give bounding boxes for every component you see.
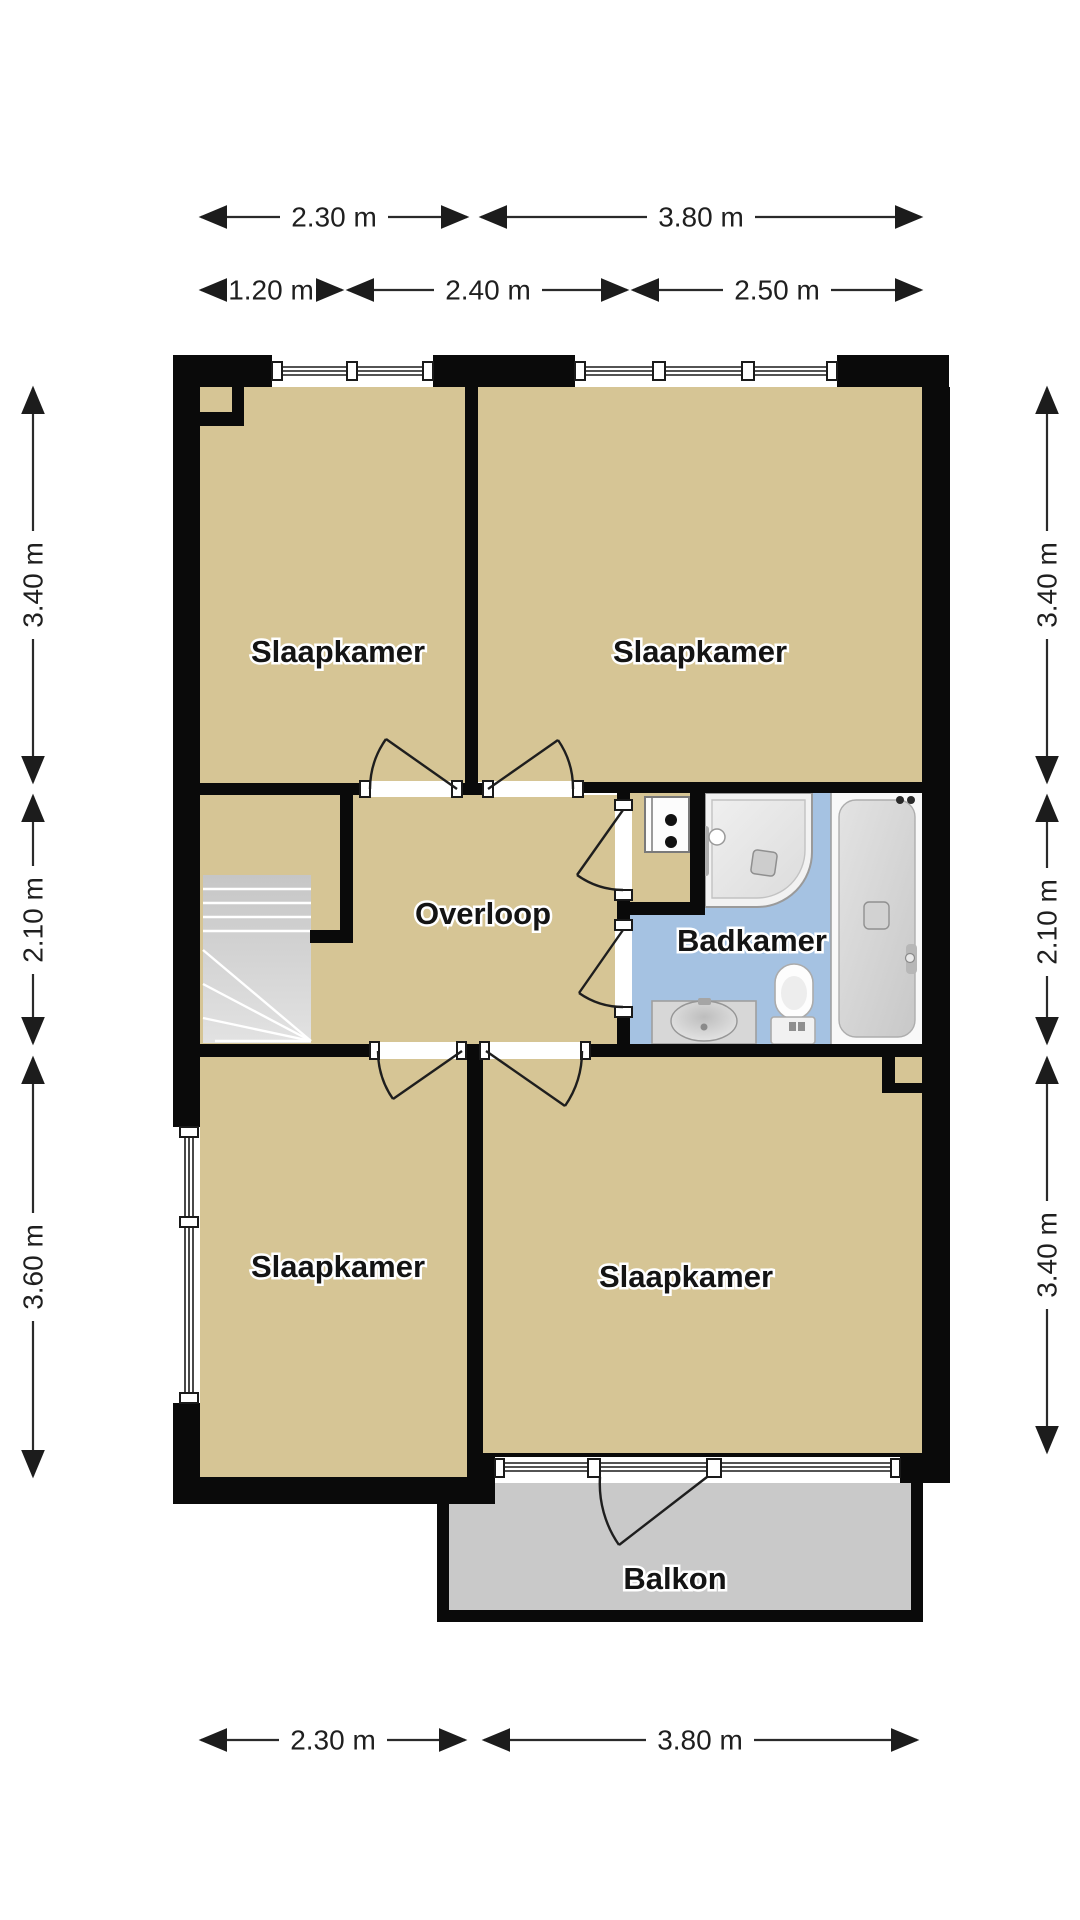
window-frame xyxy=(575,362,585,380)
shower xyxy=(701,793,812,907)
stairs xyxy=(203,875,311,1043)
window-balcony xyxy=(495,1457,900,1479)
dim-top-secondary-3: 2.50 m xyxy=(633,275,921,306)
wall-stairwell xyxy=(340,795,353,943)
window-frame xyxy=(588,1459,600,1477)
bathtub-faucet xyxy=(896,796,904,804)
dim-label: 2.30 m xyxy=(290,1725,376,1756)
stairs-body xyxy=(203,875,311,1043)
room-label-bedroom-bottom-left: Slaapkamer xyxy=(251,1249,425,1284)
door-frame xyxy=(573,781,583,797)
sink-basin xyxy=(671,1001,737,1041)
dim-top-secondary-2: 2.40 m xyxy=(348,275,627,306)
washing-machine-knob xyxy=(665,836,677,848)
window-frame xyxy=(180,1393,198,1403)
wall-between-top-bedrooms xyxy=(465,387,478,783)
window-frame xyxy=(707,1459,721,1477)
sink-faucet xyxy=(698,998,711,1005)
shower-head-icon xyxy=(709,829,725,845)
window-left xyxy=(180,1127,198,1403)
wall-bottom-left-south xyxy=(173,1477,495,1504)
toilet-bowl-inner xyxy=(781,976,807,1010)
dim-label: 2.30 m xyxy=(291,202,377,233)
wall-top-right-corner xyxy=(837,355,949,387)
door-frame xyxy=(615,890,632,900)
dim-right-1: 3.40 m xyxy=(1032,388,1063,782)
shower-tray-inner xyxy=(712,800,805,898)
dim-label: 3.40 m xyxy=(1032,542,1063,628)
wall-balcony-junction xyxy=(483,1453,495,1477)
window-opening xyxy=(495,1457,900,1479)
toilet-flush-button xyxy=(789,1022,796,1031)
window-frame xyxy=(827,362,837,380)
dim-top-primary-2: 3.80 m xyxy=(481,202,921,233)
toilet-flush-button xyxy=(798,1022,805,1031)
dim-left-2: 2.10 m xyxy=(18,796,49,1043)
window-frame xyxy=(272,362,282,380)
bathtub-hose xyxy=(906,954,915,963)
dim-bottom-1: 2.30 m xyxy=(201,1725,465,1756)
window-frame xyxy=(347,362,357,380)
dim-label: 3.40 m xyxy=(18,542,49,628)
wall-between-bottom-bedrooms xyxy=(467,1057,483,1477)
room-floor-bedroom-bottom-right xyxy=(483,1057,922,1453)
dim-top-secondary-1: 1.20 m xyxy=(201,275,342,306)
room-label-bedroom-top-right: Slaapkamer xyxy=(613,634,787,669)
window-top-2 xyxy=(575,362,837,380)
wall-top-left-corner xyxy=(173,355,272,387)
dim-label: 3.60 m xyxy=(18,1224,49,1310)
wall-duct-stub-horizontal xyxy=(882,1083,922,1093)
room-floor-bedroom-top-left xyxy=(200,387,465,783)
room-label-bedroom-top-left: Slaapkamer xyxy=(251,634,425,669)
wall-top-middle xyxy=(433,355,575,387)
washing-machine-knob xyxy=(665,814,677,826)
door-opening xyxy=(615,800,632,900)
dim-label: 1.20 m xyxy=(228,275,314,306)
door-opening xyxy=(370,1042,466,1059)
door-opening xyxy=(615,920,632,1017)
toilet xyxy=(771,964,815,1044)
balcony-parapet-right xyxy=(911,1483,923,1622)
dim-bottom-2: 3.80 m xyxy=(484,1725,917,1756)
door-frame xyxy=(615,800,632,810)
window-frame xyxy=(742,362,754,380)
window-frame xyxy=(891,1459,900,1477)
washing-machine xyxy=(645,797,689,852)
dim-label: 2.50 m xyxy=(734,275,820,306)
wall-left-upper xyxy=(173,387,200,1127)
room-floor-bedroom-top-right xyxy=(478,387,922,782)
floor-plan-svg: Slaapkamer Slaapkamer Overloop Badkamer … xyxy=(0,0,1080,1920)
wall-landing-south-1 xyxy=(200,1044,370,1057)
door-frame xyxy=(615,1007,632,1017)
window-frame xyxy=(180,1127,198,1137)
bathtub-drain xyxy=(864,902,889,929)
wall-chimney-nook-horizontal xyxy=(200,412,244,426)
dim-label: 2.10 m xyxy=(1032,879,1063,965)
window-frame xyxy=(495,1459,504,1477)
dim-label: 3.80 m xyxy=(658,202,744,233)
dim-left-1: 3.40 m xyxy=(18,388,49,782)
room-label-balcony: Balkon xyxy=(623,1561,726,1596)
sink-drain xyxy=(701,1024,708,1031)
wall-right xyxy=(922,387,950,1453)
floor-plan: Slaapkamer Slaapkamer Overloop Badkamer … xyxy=(0,0,1080,1920)
dim-top-primary-1: 2.30 m xyxy=(201,202,467,233)
window-frame xyxy=(653,362,665,380)
bathtub-faucet xyxy=(907,796,915,804)
window-top-1 xyxy=(272,362,433,380)
dim-label: 2.40 m xyxy=(445,275,531,306)
door-frame xyxy=(480,1042,489,1059)
wall-landing-north-3 xyxy=(583,782,922,793)
dim-label: 3.40 m xyxy=(1032,1212,1063,1298)
dim-left-3: 3.60 m xyxy=(18,1058,49,1476)
balcony-parapet-left xyxy=(437,1504,449,1622)
door-opening xyxy=(360,781,462,797)
window-frame xyxy=(423,362,433,380)
shower-drain xyxy=(750,849,777,876)
dim-label: 2.10 m xyxy=(18,877,49,963)
room-label-landing: Overloop xyxy=(415,896,551,931)
wall-closet-south xyxy=(617,902,705,915)
wall-landing-south-3 xyxy=(590,1044,922,1057)
door-frame xyxy=(360,781,370,797)
balcony-parapet-bottom xyxy=(437,1610,923,1622)
wall-stairwell-foot xyxy=(310,930,353,943)
wall-bottom-right-corner xyxy=(900,1453,950,1483)
room-label-bathroom: Badkamer xyxy=(677,923,827,958)
wall-landing-north-1 xyxy=(200,783,360,795)
door-frame xyxy=(615,920,632,930)
dim-label: 3.80 m xyxy=(657,1725,743,1756)
sink xyxy=(652,998,756,1044)
dim-right-2: 2.10 m xyxy=(1032,796,1063,1043)
room-label-bedroom-bottom-right: Slaapkamer xyxy=(599,1259,773,1294)
wall-landing-south-2 xyxy=(466,1044,480,1057)
bathtub xyxy=(831,791,923,1046)
window-frame xyxy=(180,1217,198,1227)
dim-right-3: 3.40 m xyxy=(1032,1058,1063,1452)
wall-closet-east xyxy=(690,793,705,915)
door-opening xyxy=(480,1042,590,1059)
